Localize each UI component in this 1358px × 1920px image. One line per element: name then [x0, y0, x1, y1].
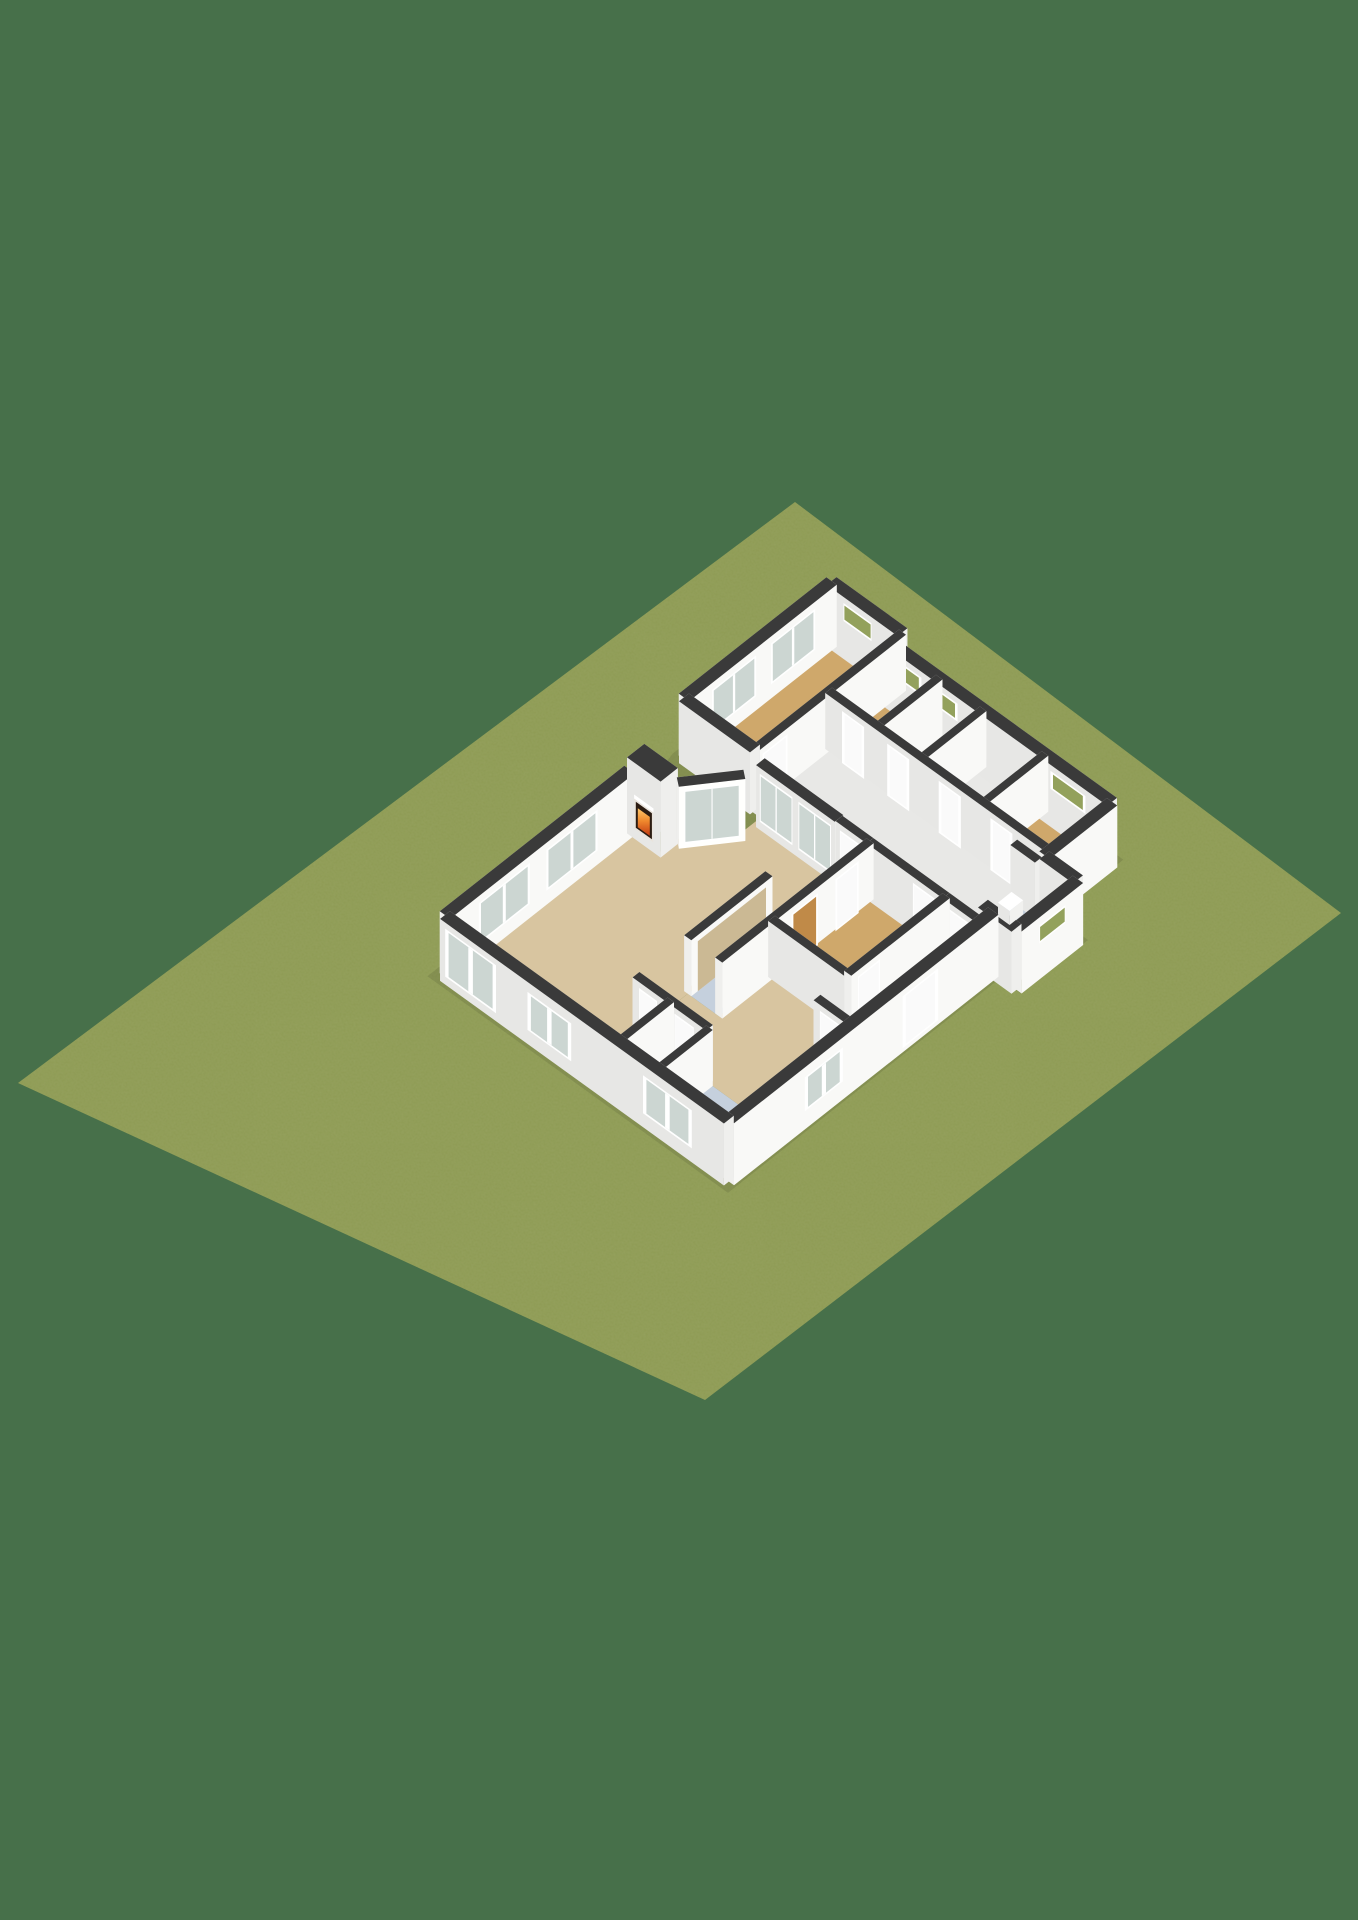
wall-living-nw-mullion	[503, 884, 506, 923]
wall-hall-east-end-1	[715, 958, 722, 1019]
wall-hall-west-end-1	[684, 935, 691, 996]
wall-annex-sw-end-2	[1012, 924, 1022, 994]
wall-exterior-sw-mullion	[468, 947, 473, 994]
wall-chimney-end-2	[661, 768, 678, 858]
wall-exterior-sw-mullion	[547, 1008, 552, 1045]
wall-master-nw-mullion	[792, 627, 794, 666]
wall-living-nw-mullion	[571, 831, 574, 870]
floorplan-stage	[0, 0, 1358, 1920]
wall-entry-diagonal-mullion	[712, 789, 713, 839]
wall-entry-ne-mullion	[814, 815, 815, 860]
wall-entry-ne-mullion	[776, 787, 777, 832]
wall-exterior-sw-mullion	[665, 1093, 670, 1130]
floorplan-3d-render	[0, 0, 1358, 1920]
wall-master-nw-mullion	[733, 674, 735, 713]
wall-entry-diagonal-end-1	[677, 777, 679, 848]
wall-entry-diagonal	[677, 770, 746, 849]
wall-exterior-sw-end-2	[724, 1116, 734, 1186]
wall-exterior-se-mullion	[822, 1063, 826, 1096]
